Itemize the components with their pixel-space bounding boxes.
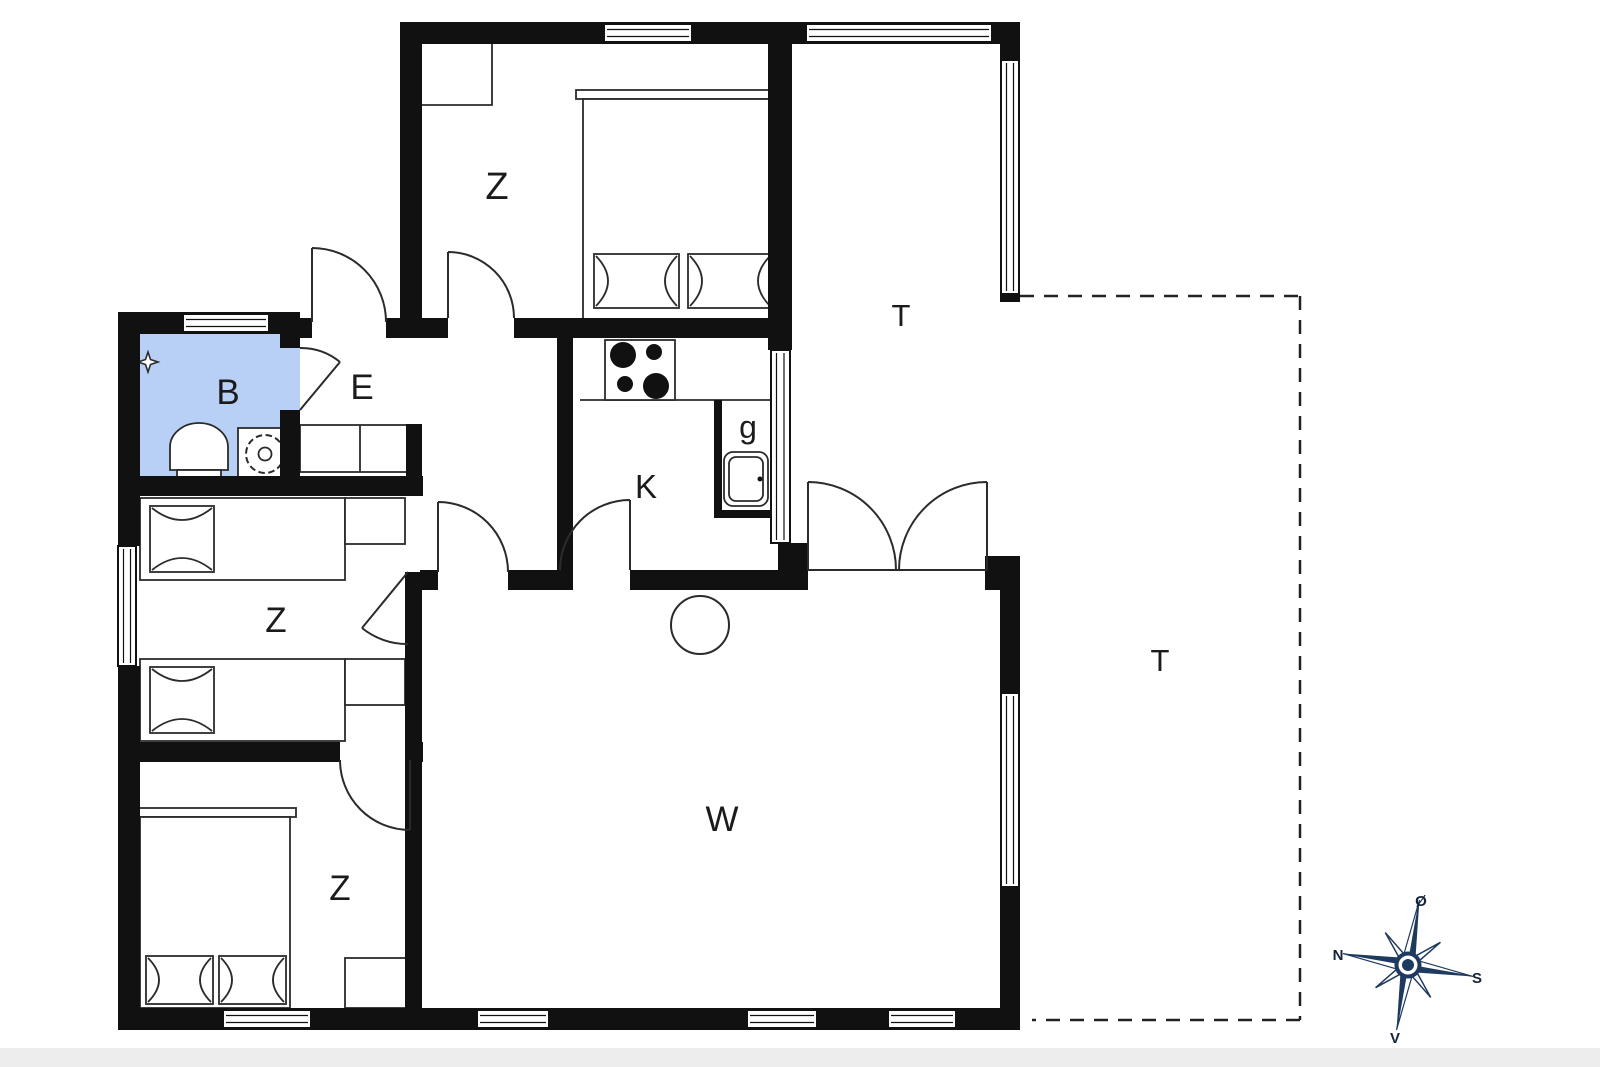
wood-stove-icon [671,596,729,654]
window [223,1010,311,1028]
window [604,24,692,42]
burner [643,373,669,399]
page-bottom-strip [0,1048,1600,1067]
window [888,1010,956,1028]
compass-label-north: N [1333,947,1344,964]
bedside-table [345,498,405,544]
burner [610,342,636,368]
window [747,1010,817,1028]
bed-headboard [134,808,296,817]
room-label-living-room: W [705,800,738,839]
room-label-terrace-open: T [1151,643,1170,678]
guest-wc-fixtures [724,452,768,506]
room-label-bedroom-double: Z [329,869,350,908]
door-bedroom-bottom [340,760,410,830]
fixtures [134,44,784,1008]
window [477,1010,549,1028]
room-label-bedroom-top: Z [485,166,508,208]
burner [646,344,662,360]
door-bathroom [300,348,340,410]
window [183,314,269,332]
room-label-terrace-covered: T [892,298,911,333]
entrance-wardrobe [300,425,420,472]
door-front-entrance [312,248,386,322]
floor-plan: Z T B E K g Z Z W T N Ø S [0,0,1600,1067]
bed-headboard [576,90,784,99]
compass-label-south: S [1472,970,1482,987]
french-doors-terrace [808,482,987,570]
window [806,24,992,42]
wc-sink-tap [758,477,763,482]
toilet-icon [170,423,228,470]
floor-plan-page: Z T B E K g Z Z W T N Ø S [0,0,1600,1067]
pillow [150,506,214,572]
room-label-guest-wc: g [739,409,757,445]
pillow [688,254,772,308]
room-label-bathroom: B [216,373,239,412]
compass-label-east: Ø [1415,893,1427,910]
window [771,350,790,543]
door-bedroom-twin [362,572,408,644]
pillow [146,956,213,1004]
bedside-table [345,659,405,705]
room-label-kitchen: K [635,468,657,505]
window [1001,693,1019,887]
kitchen-fixtures [580,340,776,400]
compass-rose: N Ø S V [1332,889,1485,1047]
pillow [150,667,214,733]
door-bedroom-top [448,252,514,318]
window [1001,60,1019,294]
closet-top-bedroom [422,44,492,105]
sink-drain [259,448,272,461]
door-hall-living [438,502,508,572]
double-bed-top [576,90,784,320]
room-label-entrance: E [350,368,373,407]
double-bed-bottom [134,808,408,1008]
compass-star [1332,889,1485,1042]
pillow [594,254,679,308]
window [118,546,136,666]
closet-bottom-bedroom [345,958,408,1008]
pillow [219,956,286,1004]
room-label-bedroom-twin: Z [265,601,286,640]
compass-label-west: V [1390,1030,1400,1047]
burner [617,376,633,392]
